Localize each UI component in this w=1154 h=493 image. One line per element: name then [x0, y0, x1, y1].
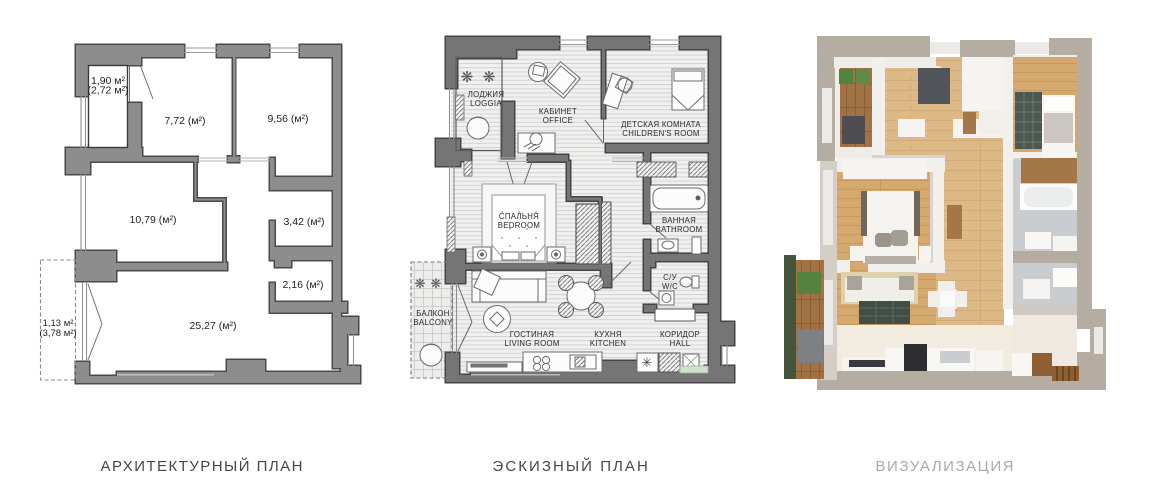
- svg-text:HALL: HALL: [670, 339, 691, 348]
- svg-text:КОРИДОР: КОРИДОР: [660, 330, 700, 339]
- svg-text:СПАЛЬНЯ: СПАЛЬНЯ: [499, 212, 539, 221]
- svg-text:ГОСТИНАЯ: ГОСТИНАЯ: [510, 330, 554, 339]
- svg-text:✳: ✳: [642, 355, 653, 370]
- svg-text:❋: ❋: [483, 69, 496, 86]
- svg-text:2,16 (м²): 2,16 (м²): [282, 279, 323, 291]
- svg-text:BATHROOM: BATHROOM: [656, 225, 703, 234]
- svg-text:3,42 (м²): 3,42 (м²): [283, 216, 324, 228]
- svg-text:❋: ❋: [415, 276, 426, 291]
- svg-text:ЛОДЖИЯ: ЛОДЖИЯ: [468, 90, 505, 99]
- svg-text:BALCONY: BALCONY: [413, 318, 453, 327]
- svg-text:W/C: W/C: [662, 282, 678, 291]
- svg-text:7,72 (м²): 7,72 (м²): [164, 115, 205, 127]
- svg-text:С/У: С/У: [663, 273, 677, 282]
- svg-text:CHILDREN'S ROOM: CHILDREN'S ROOM: [622, 129, 699, 138]
- svg-text:ДЕТСКАЯ КОМНАТА: ДЕТСКАЯ КОМНАТА: [621, 120, 701, 129]
- svg-text:ВАННАЯ: ВАННАЯ: [662, 216, 696, 225]
- svg-text:10,79 (м²): 10,79 (м²): [130, 214, 177, 226]
- svg-text:9,56 (м²): 9,56 (м²): [267, 113, 308, 125]
- svg-text:❋: ❋: [431, 276, 442, 291]
- svg-text:KITCHEN: KITCHEN: [590, 339, 626, 348]
- svg-text:LOGGIA: LOGGIA: [470, 99, 502, 108]
- svg-text:25,27 (м²): 25,27 (м²): [190, 320, 237, 332]
- svg-text:КАБИНЕТ: КАБИНЕТ: [539, 107, 577, 116]
- svg-text:LIVING ROOM: LIVING ROOM: [504, 339, 559, 348]
- svg-text:БАЛКОН: БАЛКОН: [416, 309, 449, 318]
- svg-text:КУХНЯ: КУХНЯ: [594, 330, 622, 339]
- svg-text:(3,78 м²): (3,78 м²): [39, 328, 76, 339]
- svg-text:(2,72 м²): (2,72 м²): [87, 85, 128, 97]
- svg-text:BEDROOM: BEDROOM: [498, 221, 540, 230]
- svg-text:OFFICE: OFFICE: [543, 116, 573, 125]
- svg-text:❋: ❋: [461, 69, 474, 86]
